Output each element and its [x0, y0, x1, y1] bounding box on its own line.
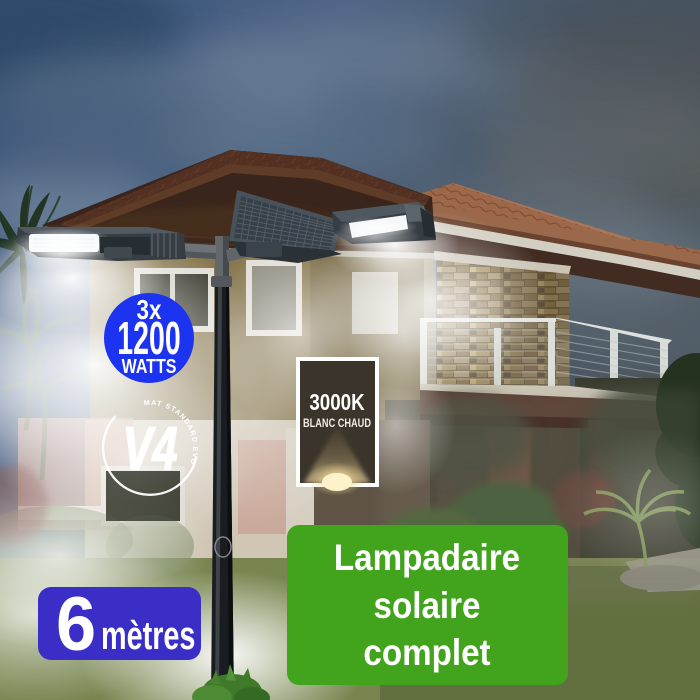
svg-text:complet: complet: [363, 631, 490, 673]
svg-text:solaire: solaire: [374, 584, 481, 626]
svg-text:6: 6: [56, 581, 96, 666]
svg-text:WATTS: WATTS: [122, 355, 177, 377]
svg-text:Lampadaire: Lampadaire: [334, 536, 520, 578]
svg-text:BLANC CHAUD: BLANC CHAUD: [303, 418, 371, 430]
svg-text:mètres: mètres: [101, 613, 195, 658]
svg-text:3000K: 3000K: [309, 389, 365, 416]
svg-text:V4: V4: [122, 416, 177, 483]
